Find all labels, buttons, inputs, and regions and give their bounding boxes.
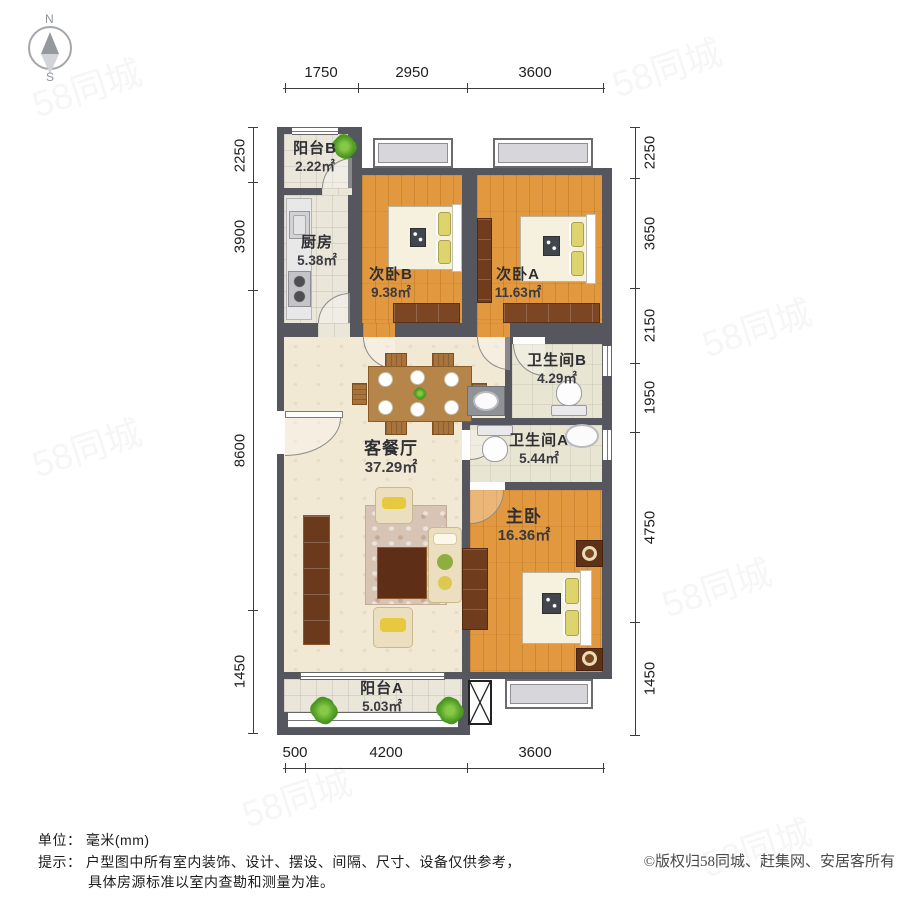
bay-window-bedroom-a <box>493 138 593 168</box>
dim-tick <box>467 763 468 773</box>
dim-tick <box>630 127 640 128</box>
dim-tick <box>358 83 359 93</box>
dim-bottom-2: 4200 <box>356 744 416 761</box>
dim-right-1: 2250 <box>642 123 659 183</box>
sliding-door-balcony-a <box>300 672 445 680</box>
closet-bedroom-b <box>393 303 460 323</box>
dim-tick <box>248 182 258 183</box>
dining-chair <box>352 383 367 405</box>
dim-tick <box>630 288 640 289</box>
dim-left-3: 8600 <box>232 421 249 481</box>
cushion-icon <box>542 593 561 614</box>
dim-top-2: 2950 <box>382 64 442 81</box>
plate-icon <box>444 372 459 387</box>
tip-text-1: 户型图中所有室内装饰、设计、摆设、间隔、尺寸、设备仅供参考， <box>86 854 521 870</box>
pillow-icon <box>438 240 451 264</box>
bed-headboard-bedroom-b <box>452 204 462 272</box>
bay-window-bedroom-b <box>373 138 453 168</box>
window-bath-b <box>602 346 612 376</box>
bath-b-door-gap <box>513 337 545 344</box>
bedroom-a-door-gap <box>477 323 510 337</box>
dim-tick <box>285 763 286 773</box>
pillow-icon <box>565 578 579 604</box>
room-label-bedroom-a: 次卧A 11.63㎡ <box>478 266 558 302</box>
dim-right-5: 4750 <box>642 498 659 558</box>
sofa-pillow <box>433 533 457 545</box>
watermark-text: 58同城 <box>655 544 778 628</box>
floorplan-image: 58同城 58同城 58同城 58同城 58同城 58同城 58同城 N S <box>0 0 900 900</box>
sofa-cushion-yellow <box>438 576 452 590</box>
compass: N S <box>18 14 84 80</box>
dim-tick <box>305 763 306 773</box>
dim-tick <box>630 432 640 433</box>
dim-bottom-3: 3600 <box>505 744 565 761</box>
armchair-cushion <box>380 618 406 632</box>
dim-line-top <box>283 88 605 89</box>
watermark-text: 58同城 <box>25 404 148 488</box>
dim-tick <box>248 610 258 611</box>
dim-tick <box>248 290 258 291</box>
armchair-cushion <box>382 497 406 509</box>
compass-north-label: N <box>45 12 54 26</box>
dim-tick <box>630 178 640 179</box>
kitchen-door-gap <box>318 323 350 337</box>
closet-bedroom-a <box>503 303 600 323</box>
air-shaft-icon <box>468 680 492 725</box>
tip-note-line1: 提示： 户型图中所有室内装饰、设计、摆设、间隔、尺寸、设备仅供参考， <box>38 852 521 872</box>
dim-tick <box>285 83 286 93</box>
tip-note-line2: 具体房源标准以室内查勘和测量为准。 <box>88 872 335 892</box>
dining-chair <box>385 420 407 435</box>
kitchen-stove-icon <box>288 271 311 307</box>
pillow-icon <box>565 610 579 636</box>
plate-icon <box>378 400 393 415</box>
bed-headboard-master <box>580 570 592 646</box>
plate-icon <box>378 372 393 387</box>
dim-tick <box>630 363 640 364</box>
plate-icon <box>444 400 459 415</box>
dim-tick <box>603 83 604 93</box>
tv-cabinet <box>303 515 330 645</box>
tip-label: 提示： <box>38 854 82 870</box>
bedroom-b-door-gap <box>363 323 395 337</box>
compass-south-label: S <box>46 70 54 84</box>
bay-window-master <box>505 679 593 709</box>
compass-needle-north-icon <box>41 32 59 54</box>
tip-text-2: 具体房源标准以室内查勘和测量为准。 <box>88 874 335 890</box>
dim-tick <box>467 83 468 93</box>
dim-tick <box>248 127 258 128</box>
unit-label: 单位： <box>38 832 82 848</box>
window-bath-a <box>602 430 612 460</box>
master-door-gap <box>470 482 505 490</box>
dim-tick <box>248 733 258 734</box>
pillow-icon <box>571 222 584 247</box>
bed-headboard-bedroom-a <box>586 214 596 284</box>
balcony-b-door-gap <box>322 188 352 195</box>
dim-top-3: 3600 <box>505 64 565 81</box>
dim-line-left <box>253 127 254 733</box>
dim-right-2: 3650 <box>642 204 659 264</box>
dim-line-right <box>635 127 636 735</box>
window-balcony-b-top <box>292 127 338 135</box>
room-label-living: 客餐厅 37.29㎡ <box>345 438 437 478</box>
dim-left-2: 3900 <box>232 207 249 267</box>
toilet-tank <box>551 405 587 416</box>
plate-icon <box>410 402 425 417</box>
dining-chair <box>432 420 454 435</box>
dim-line-bottom <box>283 768 605 769</box>
room-label-bath-a: 卫生间A 5.44㎡ <box>500 432 578 468</box>
room-label-kitchen: 厨房 5.38㎡ <box>282 234 352 270</box>
cushion-icon <box>543 236 560 256</box>
dim-bottom-1: 500 <box>265 744 325 761</box>
room-label-bath-b: 卫生间B 4.29㎡ <box>518 352 596 388</box>
watermark-text: 58同城 <box>695 284 818 368</box>
wardrobe-master <box>462 548 488 630</box>
dim-right-4: 1950 <box>642 368 659 428</box>
lamp-icon <box>582 546 597 561</box>
copyright-text: ©版权归58同城、赶集网、安居客所有 <box>575 850 895 871</box>
watermark-text: 58同城 <box>235 754 358 838</box>
dim-left-4: 1450 <box>232 642 249 702</box>
pillow-icon <box>438 212 451 236</box>
bath-a-door-gap <box>462 430 470 460</box>
watermark-text: 58同城 <box>605 24 728 108</box>
entry-door-gap <box>277 411 285 454</box>
unit-value: 毫米(mm) <box>86 832 150 848</box>
dim-left-1: 2250 <box>232 126 249 186</box>
lamp-icon <box>582 651 597 666</box>
pillow-icon <box>571 251 584 276</box>
dim-tick <box>630 622 640 623</box>
washbasin-icon <box>473 391 499 411</box>
room-label-balcony-a: 阳台A 5.03㎡ <box>332 680 432 716</box>
room-label-bedroom-b: 次卧B 9.38㎡ <box>355 266 427 302</box>
entry-door-leaf <box>285 411 343 418</box>
room-label-balcony-b: 阳台B 2.22㎡ <box>280 140 350 176</box>
plate-icon <box>410 370 425 385</box>
dim-tick <box>630 735 640 736</box>
room-label-master: 主卧 16.36㎡ <box>482 506 566 546</box>
dim-right-3: 2150 <box>642 296 659 356</box>
cushion-icon <box>410 228 426 247</box>
coffee-table <box>377 547 427 599</box>
dim-top-1: 1750 <box>291 64 351 81</box>
dim-right-6: 1450 <box>642 649 659 709</box>
unit-note: 单位： 毫米(mm) <box>38 830 150 850</box>
watermark-text: 58同城 <box>695 804 818 888</box>
dim-tick <box>603 763 604 773</box>
sofa-cushion-green <box>437 554 453 570</box>
